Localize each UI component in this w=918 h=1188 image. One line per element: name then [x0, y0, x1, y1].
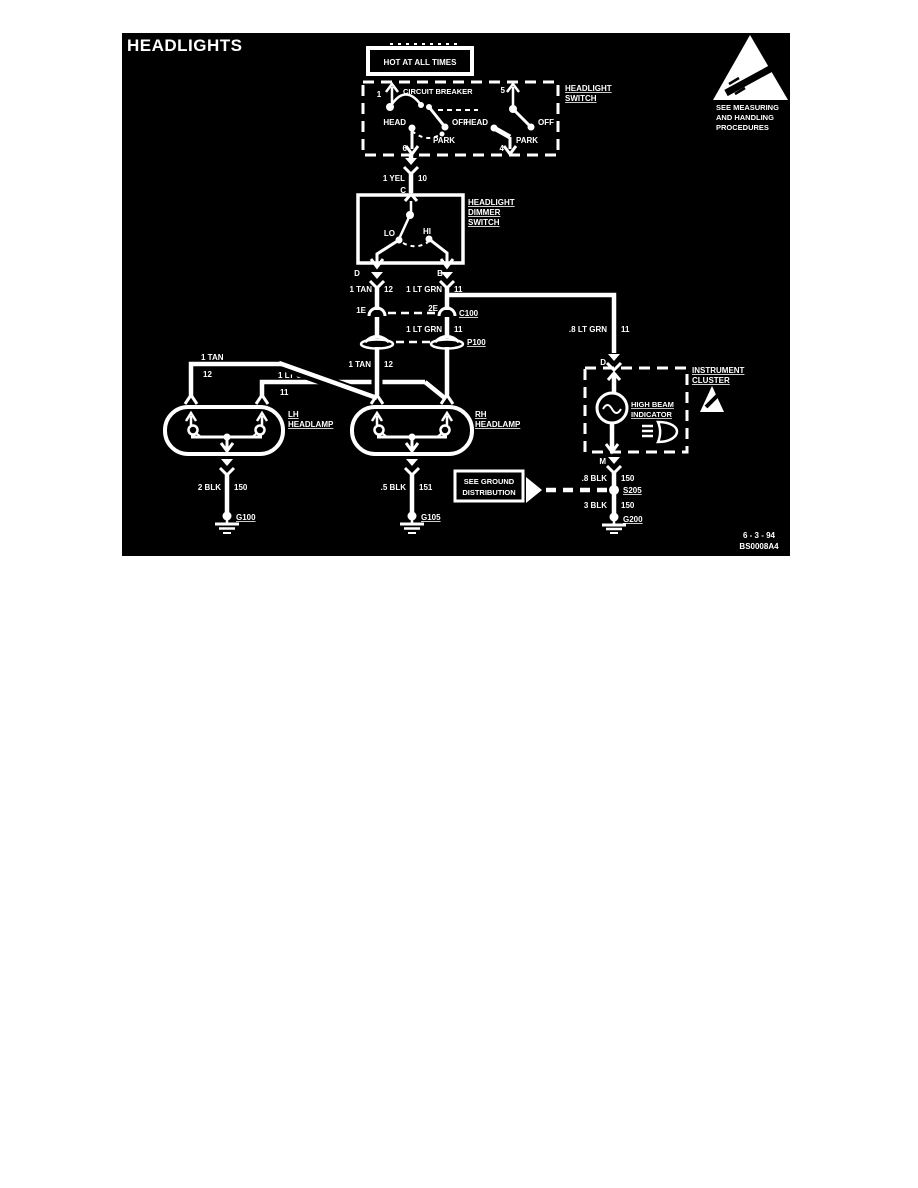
lo-output-path: [377, 240, 399, 263]
footer: 6 - 3 - 94 BS0008A4: [739, 531, 779, 551]
wiring-diagram: HEADLIGHTS HOT AT ALL TIMES HEADLIGHT SW…: [122, 33, 790, 556]
rh-headlamp: RH HEADLAMP: [352, 407, 521, 454]
revision-date: 6 - 3 - 94: [743, 531, 776, 540]
blk-lh-label: 2 BLK: [198, 483, 221, 492]
dimmer-blade: [399, 215, 410, 239]
terminal-b-label: B: [437, 269, 443, 278]
ltgrn-indicator-label: .8 LT GRN: [569, 325, 607, 334]
park-label-left: PARK: [433, 136, 455, 145]
hot-at-all-times-label: HOT AT ALL TIMES: [384, 58, 458, 67]
circuit-breaker-arc: [390, 94, 421, 107]
inline-connector-icon: [405, 158, 417, 165]
g105-label: G105: [421, 513, 441, 522]
blk-indicator-circuit: 150: [621, 474, 635, 483]
tan-lower-circuit: 12: [384, 360, 393, 369]
terminal-4-label: 4: [500, 144, 505, 153]
terminal-1-label: 1: [377, 90, 382, 99]
harness: 1 TAN 12 1 LT GRN 11 1E 2E C100 1 LT GRN…: [185, 285, 614, 404]
dimmer-switch-label-1: HEADLIGHT: [468, 198, 515, 207]
ltgrn-upper-label: 1 LT GRN: [406, 285, 442, 294]
blk-lh-circuit: 150: [234, 483, 248, 492]
head-label-right: HEAD: [465, 118, 488, 127]
inline-connector-icon: [440, 281, 454, 288]
ltgrn-upper-circuit: 11: [454, 285, 463, 294]
inline-connector-icon: [221, 459, 233, 466]
hi-label: HI: [423, 227, 431, 236]
hi-output-path: [429, 239, 447, 263]
ltgrn-branch-diagonal: [425, 382, 446, 399]
right-arrow-icon: [526, 477, 542, 503]
cluster-terminal-m: M: [599, 457, 606, 466]
tan-branch-label: 1 TAN: [201, 353, 224, 362]
lamp-terminal-connector-icon: [256, 395, 268, 404]
high-beam-indicator-label-2: INDICATOR: [631, 410, 673, 419]
blk-ground-label: 3 BLK: [584, 501, 607, 510]
document-code: BS0008A4: [739, 542, 779, 551]
tan-upper-circuit: 12: [384, 285, 393, 294]
instrument-cluster: .8 LT GRN 11 D INSTRUMENT CLUSTER HIGH B…: [569, 325, 745, 533]
esd-warning: SEE MEASURING AND HANDLING PROCEDURES: [713, 35, 788, 132]
blk-rh-circuit: 151: [419, 483, 433, 492]
cluster-terminal-d: D: [600, 358, 606, 367]
wiring-diagram-canvas: HOT AT ALL TIMES HEADLIGHT SWITCH 1 CIRC…: [122, 33, 790, 556]
tan-lower-label: 1 TAN: [348, 360, 371, 369]
lo-label: LO: [384, 229, 395, 238]
esd-note-line-2: AND HANDLING: [716, 113, 774, 122]
blk-rh-label: .5 BLK: [381, 483, 407, 492]
c100-terminal-1e: 1E: [356, 306, 366, 315]
dimmer-switch-label-2: DIMMER: [468, 208, 501, 217]
off-label-right: OFF: [538, 118, 554, 127]
terminal-5-label: 5: [501, 86, 506, 95]
inline-connector-icon: [220, 468, 234, 475]
ground-note-line-2: DISTRIBUTION: [462, 488, 515, 497]
g200-label: G200: [623, 515, 643, 524]
s205-label: S205: [623, 486, 642, 495]
head-park-blade: [494, 128, 510, 137]
dimmer-circuit: 1 YEL 10 C HEADLIGHT DIMMER SWITCH LO HI: [354, 154, 515, 288]
dimmer-switch-label-3: SWITCH: [468, 218, 500, 227]
inline-connector-icon: [608, 354, 620, 361]
bulb-filament-icon: [603, 405, 621, 413]
ltgrn-mid-label: 1 LT GRN: [406, 325, 442, 334]
tan-branch-circuit: 12: [203, 370, 212, 379]
lh-headlamp-label-1: LH: [288, 410, 299, 419]
park-label-right: PARK: [516, 136, 538, 145]
lh-headlamp-label-2: HEADLAMP: [288, 420, 334, 429]
inline-connector-icon: [371, 272, 383, 279]
c100-terminal-2e: 2E: [428, 304, 438, 313]
yel-wire-circuit: 10: [418, 174, 427, 183]
terminal-6-label: 6: [403, 144, 408, 153]
p100-label: P100: [467, 338, 486, 347]
head-label-left: HEAD: [383, 118, 406, 127]
blk-ground-circuit: 150: [621, 501, 635, 510]
blk-indicator-label: .8 BLK: [582, 474, 608, 483]
inline-connector-icon: [406, 459, 418, 466]
ltgrn-indicator-circuit: 11: [621, 325, 630, 334]
rh-headlamp-label-1: RH: [475, 410, 487, 419]
ltgrn-mid-circuit: 11: [454, 325, 463, 334]
c100-label: C100: [459, 309, 479, 318]
off-contact-dot-left: [442, 124, 449, 131]
ground-note-line-1: SEE GROUND: [464, 477, 515, 486]
ltgrn-branch-circuit: 11: [280, 388, 289, 397]
power-feed: HOT AT ALL TIMES: [368, 44, 472, 74]
g100-label: G100: [236, 513, 256, 522]
inline-connector-icon: [608, 457, 620, 464]
terminal-d-label: D: [354, 269, 360, 278]
manual-page: HEADLIGHTS HOT AT ALL TIMES HEADLIGHT SW…: [0, 0, 918, 1188]
lamp-grounds: 2 BLK 150 G100 .5 BLK 151 G105: [198, 459, 441, 533]
lamp-terminal-connector-icon: [185, 395, 197, 404]
lh-headlamp: LH HEADLAMP: [165, 407, 334, 454]
inline-connector-icon: [607, 466, 621, 473]
breaker-out-dot: [418, 102, 424, 108]
inline-connector-icon: [405, 468, 419, 475]
connector-cup-icon: [369, 308, 385, 316]
tan-upper-label: 1 TAN: [349, 285, 372, 294]
instrument-cluster-label-1: INSTRUMENT: [692, 366, 745, 375]
high-beam-icon: [658, 422, 677, 442]
headlight-switch-label-2: SWITCH: [565, 94, 597, 103]
rh-headlamp-label-2: HEADLAMP: [475, 420, 521, 429]
off-contact-dot-right: [528, 124, 535, 131]
esd-note-line-1: SEE MEASURING: [716, 103, 779, 112]
dimmer-dashed-arc: [403, 242, 428, 246]
switch-blade-right: [513, 109, 531, 127]
connector-cup-icon: [439, 308, 455, 316]
headlight-switch: HEADLIGHT SWITCH 1 CIRCUIT BREAKER OFF H…: [363, 82, 612, 155]
yel-wire-label: 1 YEL: [383, 174, 405, 183]
inline-connector-icon: [370, 281, 384, 288]
headlight-switch-label-1: HEADLIGHT: [565, 84, 612, 93]
circuit-breaker-label: CIRCUIT BREAKER: [403, 87, 473, 96]
inline-connector-icon: [404, 167, 418, 174]
instrument-cluster-label-2: CLUSTER: [692, 376, 730, 385]
splice-dot: [609, 485, 619, 495]
esd-note-line-3: PROCEDURES: [716, 123, 769, 132]
high-beam-indicator-label-1: HIGH BEAM: [631, 400, 674, 409]
